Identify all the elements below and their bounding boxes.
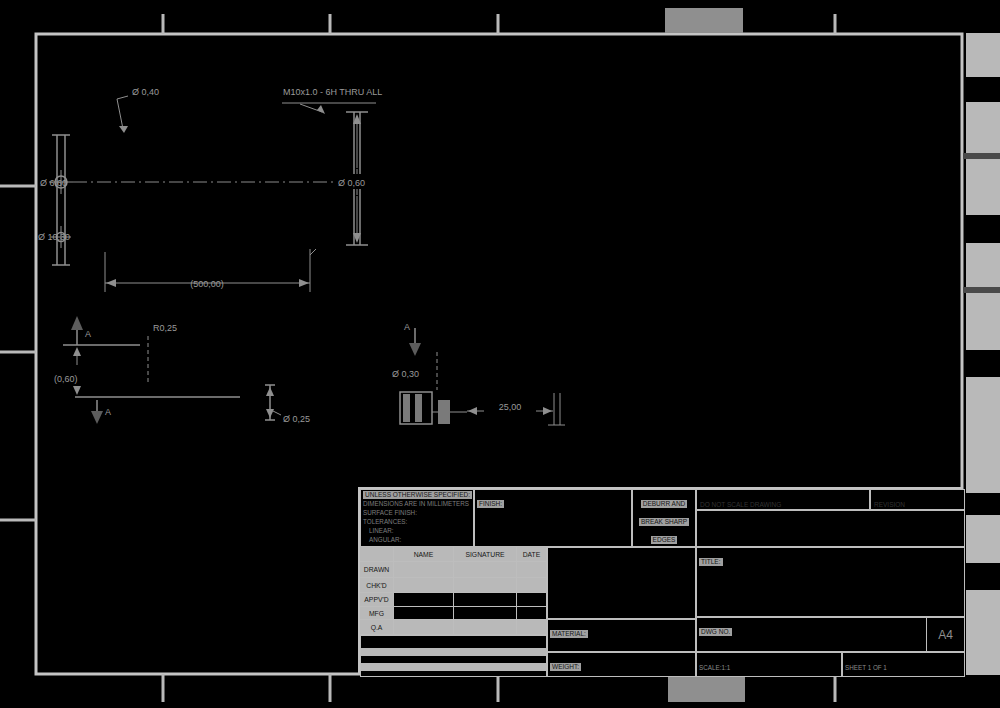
- fill-band: [361, 648, 546, 656]
- material-label: MATERIAL:: [550, 630, 588, 638]
- section-hatch-bar: [403, 394, 410, 422]
- tolerance-line: TOLERANCES:: [363, 518, 407, 525]
- dim-label-v5-width: 25,00: [499, 402, 522, 412]
- dim-arrow-left: [468, 407, 477, 415]
- signature-header: SIGNATURE: [454, 547, 517, 562]
- row-label-mfg: MFG: [360, 607, 394, 620]
- revision-label: REVISION: [874, 501, 905, 508]
- weight-box: WEIGHT:: [547, 652, 696, 677]
- row-label-drawn: DRAWN: [360, 562, 394, 578]
- dim-arrow: [266, 409, 274, 418]
- dim-label-v4-dia: Ø 0,25: [283, 414, 310, 424]
- sheet-cell: SHEET 1 OF 1: [842, 652, 965, 677]
- dim-label-v1-bottom: Ø 10,30: [38, 232, 70, 242]
- sheet-size-box: A4: [926, 618, 964, 651]
- title-block: UNLESS OTHERWISE SPECIFIED: DIMENSIONS A…: [358, 487, 963, 675]
- table-row: CHK'D: [360, 578, 547, 593]
- deburr-line: DEBURR AND: [641, 500, 688, 508]
- comments-box: [547, 547, 696, 619]
- dim-label-v5-dia: Ø 0,30: [392, 369, 419, 379]
- dim-label-v3-gap: (0,60): [54, 374, 78, 384]
- dwg-no-label: DWG NO.: [699, 628, 732, 636]
- weight-label: WEIGHT:: [550, 663, 581, 671]
- finish-label: FINISH:: [477, 500, 504, 508]
- material-box: MATERIAL:: [547, 619, 696, 652]
- date-header: DATE: [517, 547, 547, 562]
- section-letter: A: [105, 407, 111, 417]
- dim-label-v2-height: Ø 0,60: [338, 178, 365, 188]
- fill-band: [361, 663, 546, 671]
- table-blank-area: [360, 635, 547, 677]
- thread-callout: M10x1.0 - 6H THRU ALL: [283, 87, 382, 97]
- section-hatch-bar: [415, 394, 422, 422]
- row-label-chkd: CHK'D: [360, 578, 394, 593]
- leader-arrowhead: [317, 105, 325, 114]
- table-row: APPV'D: [360, 593, 547, 607]
- section-hatch-bar: [438, 400, 450, 424]
- dim-arrow: [73, 386, 81, 395]
- scale-label: SCALE:1:1: [699, 664, 730, 671]
- section-arrow-down: [91, 411, 103, 424]
- dim-label-span: (500,00): [190, 279, 224, 289]
- deburr-box: DEBURR AND BREAK SHARP EDGES: [632, 489, 696, 547]
- title-label: TITLE:: [699, 558, 723, 566]
- row-label-appvd: APPV'D: [360, 593, 394, 607]
- sheet-size-label: A4: [938, 628, 953, 642]
- dwg-no-box: DWG NO. A4: [696, 617, 965, 652]
- leader-arrowhead: [119, 126, 128, 133]
- dim-arrow-right: [543, 407, 552, 415]
- row-label-qa: Q.A: [360, 620, 394, 635]
- table-row: DRAWN: [360, 562, 547, 578]
- top-edge-marker: [665, 8, 743, 33]
- dim-arrow-right: [299, 279, 309, 287]
- dim-arrow: [266, 387, 274, 396]
- section-letter: A: [85, 329, 91, 339]
- scale-cell: SCALE:1:1: [696, 652, 842, 677]
- tolerance-line: UNLESS OTHERWISE SPECIFIED:: [363, 491, 472, 499]
- table-row: Q.A: [360, 620, 547, 635]
- do-not-scale-label: DO NOT SCALE DRAWING: [700, 501, 781, 508]
- deburr-line: BREAK SHARP: [639, 518, 689, 526]
- name-header: NAME: [394, 547, 454, 562]
- section-letter: A: [404, 322, 410, 332]
- tolerance-line: LINEAR:: [363, 527, 394, 534]
- sheet-label: SHEET 1 OF 1: [845, 664, 887, 671]
- tolerance-line: ANGULAR:: [363, 536, 401, 543]
- revision-cell: REVISION: [870, 489, 965, 510]
- tolerance-line: DIMENSIONS ARE IN MILLIMETERS: [363, 500, 469, 507]
- tolerance-line: SURFACE FINISH:: [363, 509, 417, 516]
- table-row: MFG: [360, 607, 547, 620]
- deburr-line: EDGES: [651, 536, 678, 544]
- do-not-scale-cell: DO NOT SCALE DRAWING: [696, 489, 870, 510]
- section-arrow-up: [71, 316, 83, 330]
- drawing-sheet: Ø 0,40 Ø 6,60 Ø 10,30 M10x1.0 - 6H THRU …: [0, 0, 1000, 708]
- view-section-detail: [400, 328, 565, 425]
- revision-space: [696, 510, 965, 547]
- bottom-edge-marker: [668, 677, 745, 702]
- dim-label-v1-leader: Ø 0,40: [132, 87, 159, 97]
- view-pin-detail: [265, 385, 281, 420]
- dim-arrow: [73, 347, 81, 356]
- section-arrow-down: [409, 343, 421, 356]
- table-header-row: NAME SIGNATURE DATE: [360, 547, 547, 562]
- dim-label-v1-center: Ø 6,60: [40, 178, 67, 188]
- dim-arrow-left: [106, 279, 116, 287]
- dim-label-v3-radius: R0,25: [153, 323, 177, 333]
- tolerance-note-box: UNLESS OTHERWISE SPECIFIED: DIMENSIONS A…: [360, 489, 474, 547]
- title-box: TITLE:: [696, 547, 965, 617]
- finish-box: FINISH:: [474, 489, 632, 547]
